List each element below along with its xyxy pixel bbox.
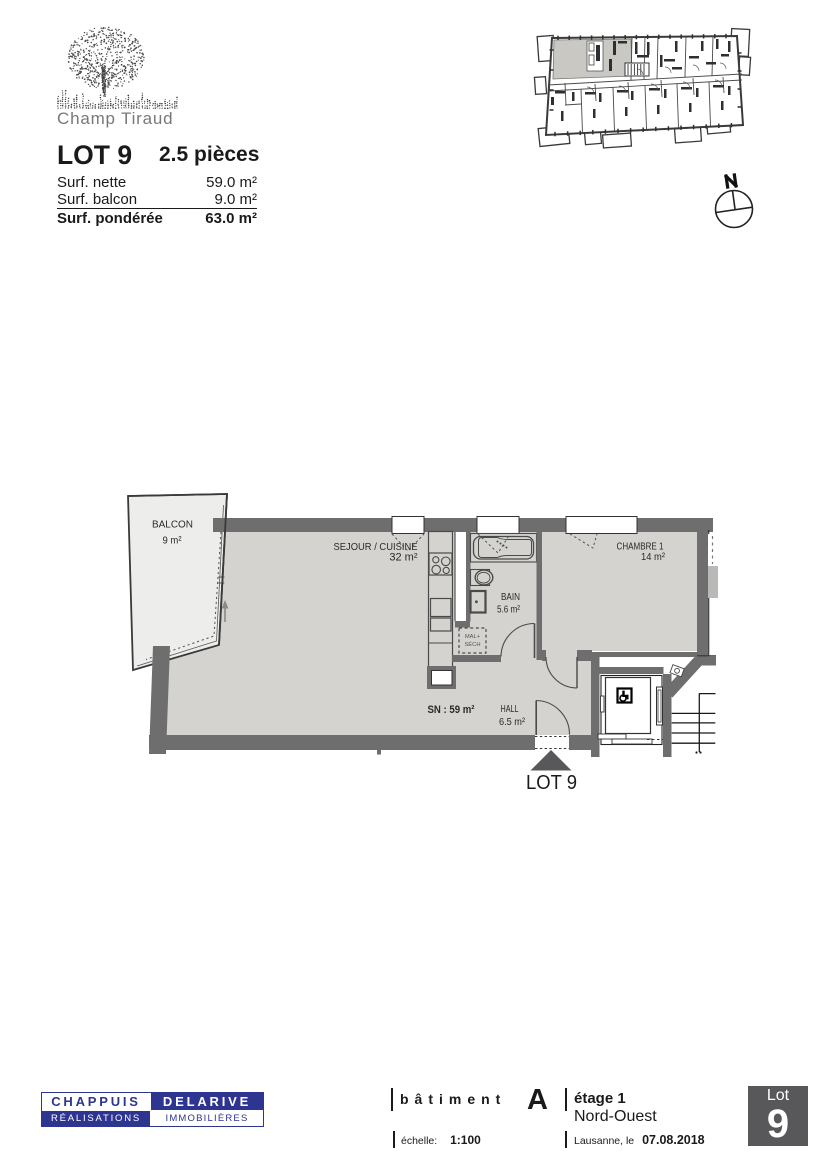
svg-text:6.5 m²: 6.5 m² bbox=[499, 717, 526, 728]
svg-text:MAL+: MAL+ bbox=[465, 634, 481, 640]
svg-text:BALCON: BALCON bbox=[152, 520, 193, 531]
svg-text:SN : 59 m²: SN : 59 m² bbox=[428, 704, 475, 716]
svg-text:9 m²: 9 m² bbox=[163, 536, 183, 547]
svg-text:LOT 9: LOT 9 bbox=[526, 771, 577, 794]
svg-text:32 m²: 32 m² bbox=[389, 552, 417, 564]
svg-text:CHAMBRE 1: CHAMBRE 1 bbox=[617, 542, 664, 553]
svg-text:BAIN: BAIN bbox=[501, 592, 520, 603]
svg-text:5.6 m²: 5.6 m² bbox=[497, 605, 521, 616]
svg-text:HALL: HALL bbox=[501, 704, 519, 715]
svg-text:SÉCH: SÉCH bbox=[464, 641, 480, 648]
svg-text:14 m²: 14 m² bbox=[641, 552, 666, 563]
